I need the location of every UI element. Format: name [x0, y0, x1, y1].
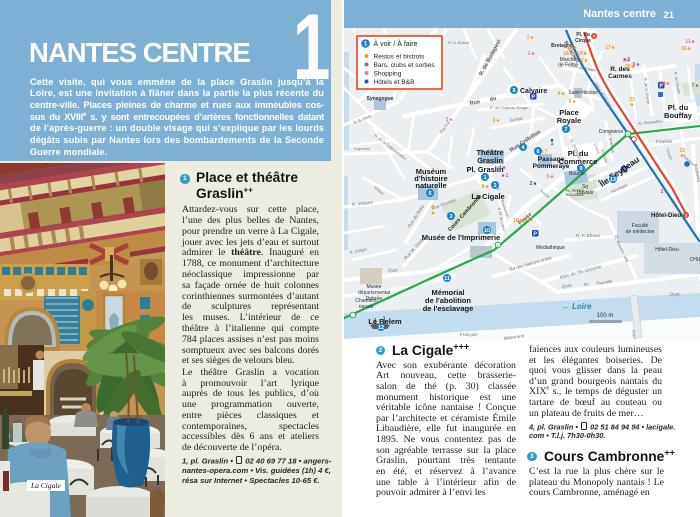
svg-text:17: 17 [605, 45, 611, 51]
svg-text:Pl. A. Briand: Pl. A. Briand [448, 41, 469, 45]
svg-text:Cirque: Cirque [575, 38, 591, 44]
svg-text:Passage: Passage [538, 156, 565, 163]
svg-text:HOLLANDE: HOLLANDE [566, 193, 586, 197]
svg-text:6: 6 [536, 149, 539, 155]
svg-text:10: 10 [660, 81, 666, 87]
svg-text:Quai: Quai [388, 267, 398, 273]
svg-text:11: 11 [685, 39, 691, 45]
svg-text:2: 2 [446, 117, 449, 123]
svg-text:Copernic: Copernic [354, 146, 370, 151]
svg-text:9: 9 [579, 166, 582, 172]
svg-text:Synagogue: Synagogue [367, 96, 394, 102]
svg-text:5: 5 [547, 174, 550, 180]
svg-text:1: 1 [506, 173, 509, 179]
svg-text:naturelle: naturelle [415, 181, 446, 190]
svg-text:Franklin: Franklin [656, 139, 673, 144]
svg-text:À voir / À faire: À voir / À faire [374, 39, 418, 48]
svg-text:21: 21 [629, 97, 635, 103]
svg-text:Saint-Nicolas: Saint-Nicolas [568, 90, 598, 96]
svg-text:Royale: Royale [557, 116, 582, 125]
svg-text:13: 13 [610, 177, 616, 183]
svg-text:7: 7 [564, 127, 567, 133]
svg-text:11: 11 [444, 276, 450, 282]
svg-text:4: 4 [499, 165, 502, 171]
svg-text:P: P [533, 231, 537, 237]
svg-text:8: 8 [512, 88, 515, 94]
svg-text:19: 19 [577, 51, 583, 57]
svg-text:du: du [489, 96, 497, 103]
svg-text:CHU: CHU [690, 257, 700, 263]
svg-text:Restos et bistrots: Restos et bistrots [374, 53, 426, 60]
svg-text:2: 2 [493, 183, 496, 189]
svg-text:de Feltre: de Feltre [558, 63, 578, 69]
svg-text:7: 7 [545, 149, 548, 155]
svg-text:←: ← [562, 302, 570, 311]
svg-text:1: 1 [551, 141, 554, 147]
svg-text:2: 2 [661, 189, 664, 195]
svg-text:Commerce: Commerce [599, 129, 624, 135]
svg-text:Hôtels et B&B: Hôtels et B&B [374, 79, 416, 86]
svg-text:Quai: Quai [670, 291, 680, 297]
svg-text:3: 3 [449, 214, 452, 220]
svg-text:2: 2 [581, 58, 584, 64]
svg-text:Loire: Loire [572, 302, 592, 311]
svg-text:Bourse: Bourse [569, 171, 585, 177]
svg-text:Hôtel-Dieu: Hôtel-Dieu [651, 213, 681, 219]
svg-text:Bars, clubs et sorties: Bars, clubs et sorties [374, 62, 436, 69]
svg-text:Hôtel-Dieu: Hôtel-Dieu [655, 247, 679, 253]
svg-text:François: François [460, 332, 478, 337]
svg-text:18: 18 [563, 51, 569, 57]
svg-text:1: 1 [527, 35, 530, 41]
svg-text:de l'esclavage: de l'esclavage [423, 304, 474, 313]
svg-text:5: 5 [628, 57, 631, 63]
svg-text:6: 6 [569, 99, 572, 105]
svg-text:7: 7 [692, 83, 695, 89]
svg-text:Musée de l'Imprimerie: Musée de l'Imprimerie [422, 233, 500, 242]
svg-text:10: 10 [513, 218, 519, 224]
svg-text:Graslin: Graslin [477, 156, 503, 165]
svg-text:Le Belem: Le Belem [368, 317, 402, 326]
svg-text:10: 10 [484, 228, 490, 234]
svg-text:Médiathèque: Médiathèque [536, 245, 565, 251]
svg-text:navals: navals [359, 304, 374, 310]
svg-text:1: 1 [528, 51, 531, 57]
svg-text:13: 13 [679, 148, 685, 154]
svg-text:R. F. Éboué: R. F. Éboué [576, 232, 600, 238]
svg-text:9: 9 [432, 205, 435, 211]
svg-text:3: 3 [493, 118, 496, 124]
svg-text:T: T [593, 34, 596, 39]
svg-text:20: 20 [625, 64, 631, 70]
svg-text:Shopping: Shopping [374, 70, 402, 77]
svg-text:12: 12 [378, 325, 384, 331]
svg-text:Carmes: Carmes [608, 73, 632, 80]
svg-text:T: T [685, 213, 688, 218]
svg-text:100 m: 100 m [597, 313, 614, 319]
svg-text:5: 5 [428, 191, 431, 197]
svg-text:2: 2 [530, 181, 533, 187]
svg-text:P: P [531, 94, 535, 100]
svg-text:11: 11 [527, 217, 533, 223]
svg-text:8: 8 [482, 184, 485, 190]
svg-text:Calvaire: Calvaire [520, 88, 547, 95]
svg-text:6: 6 [633, 62, 636, 68]
svg-text:Bouffay: Bouffay [664, 111, 693, 120]
svg-text:R. du Chapeau Rouge: R. du Chapeau Rouge [490, 106, 528, 110]
svg-text:de médecine: de médecine [626, 229, 655, 235]
svg-text:16: 16 [681, 46, 687, 52]
svg-text:1: 1 [483, 175, 486, 181]
svg-text:4: 4 [558, 91, 561, 97]
svg-text:Pommeraye: Pommeraye [533, 163, 570, 170]
